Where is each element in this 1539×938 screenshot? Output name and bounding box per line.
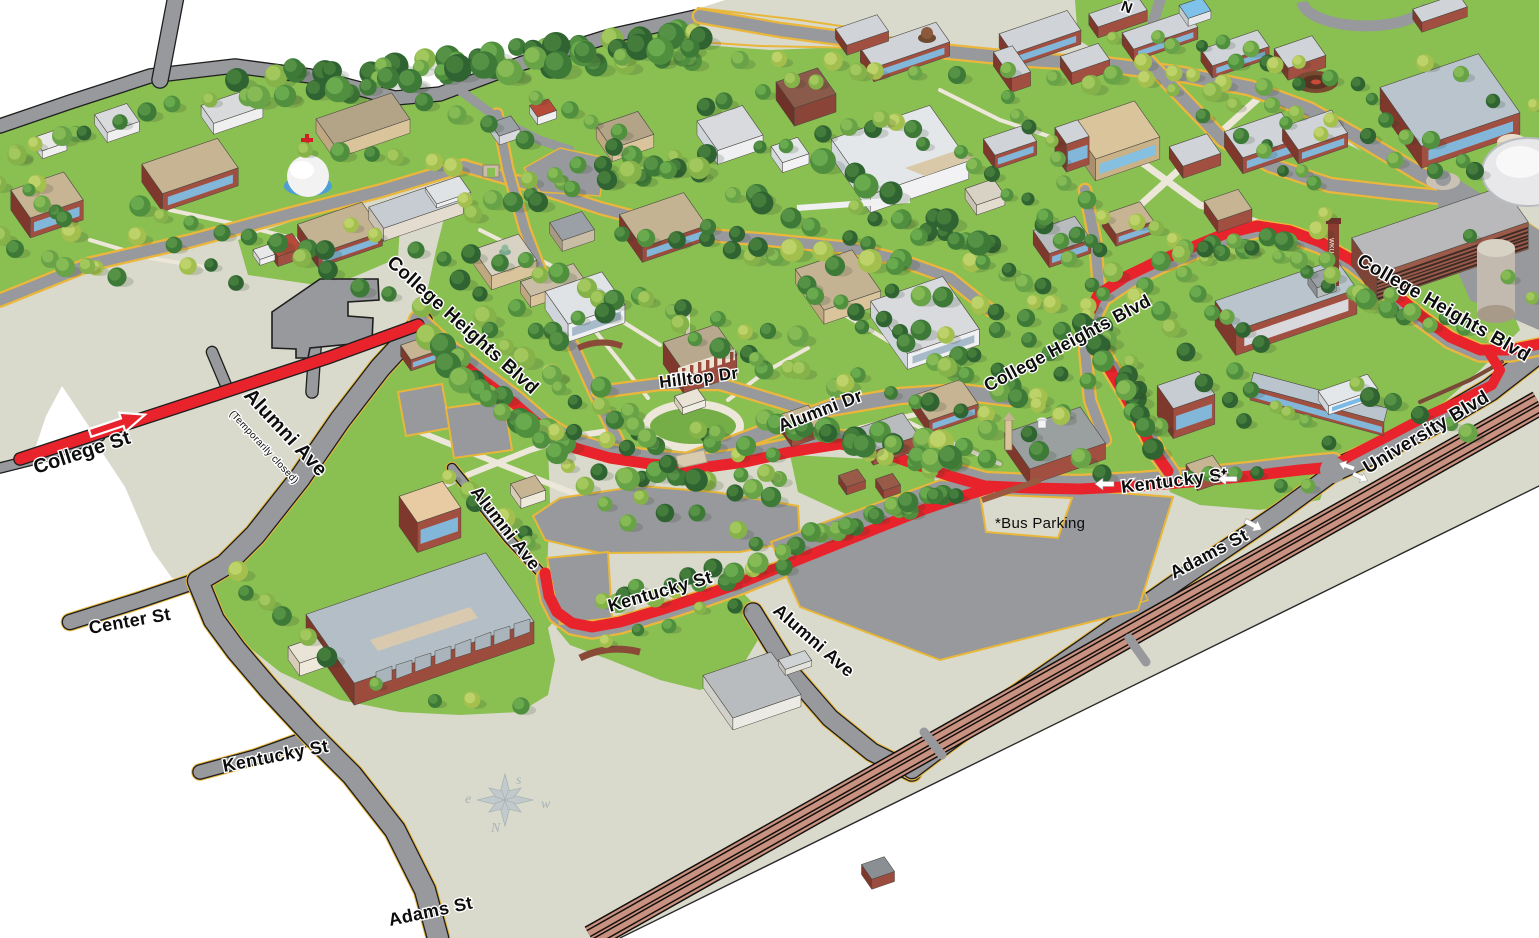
svg-text:e: e [465,792,471,807]
svg-text:s: s [516,773,522,788]
svg-text:N: N [490,821,501,836]
svg-text:WKU: WKU [1328,238,1335,253]
svg-text:w: w [541,797,551,812]
svg-text:*Bus Parking: *Bus Parking [995,515,1085,532]
